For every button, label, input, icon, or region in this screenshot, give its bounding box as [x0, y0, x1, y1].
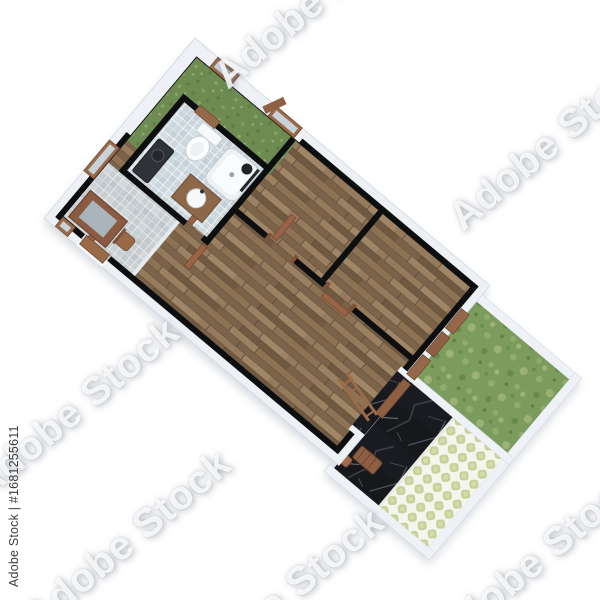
stock-attribution: Adobe Stock | #1681255611 [7, 425, 21, 587]
floor-plan-render [0, 0, 600, 600]
stock-photo-canvas: Adobe Stock Adobe Stock Adobe Stock Adob… [0, 0, 600, 600]
